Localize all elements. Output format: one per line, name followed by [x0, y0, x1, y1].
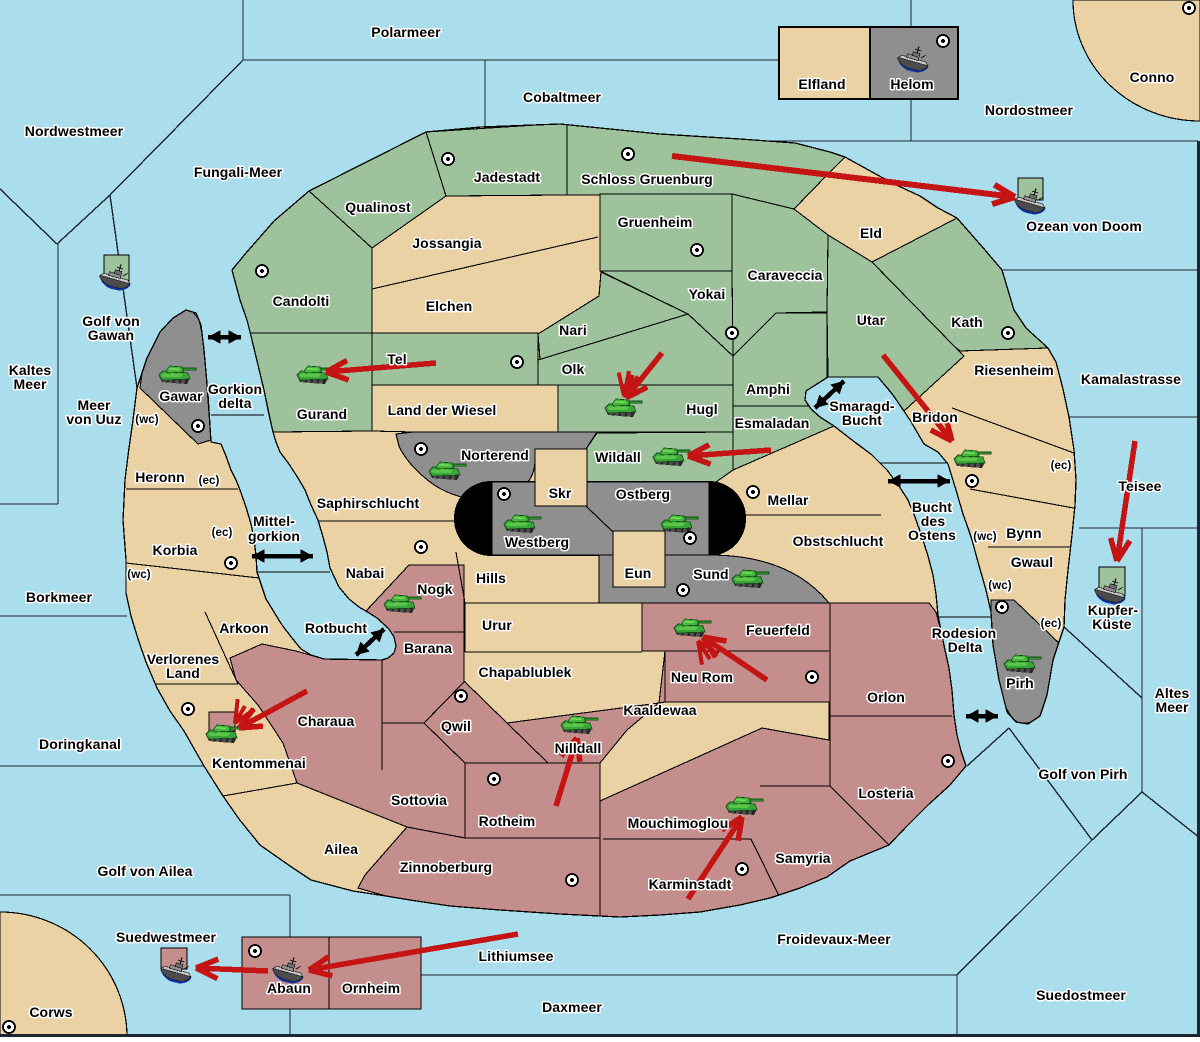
svg-text:Amphi: Amphi	[746, 381, 790, 397]
svg-text:(wc): (wc)	[135, 414, 158, 426]
svg-text:(ec): (ec)	[1041, 618, 1062, 630]
svg-text:Samyria: Samyria	[775, 850, 830, 866]
svg-text:Teisee: Teisee	[1118, 478, 1161, 494]
svg-text:Orlon: Orlon	[867, 689, 905, 705]
svg-text:Golf von Pirh: Golf von Pirh	[1038, 766, 1127, 782]
svg-text:Daxmeer: Daxmeer	[542, 999, 602, 1015]
svg-text:Gurand: Gurand	[297, 406, 347, 422]
svg-text:Obstschlucht: Obstschlucht	[793, 533, 884, 549]
svg-text:von Uuz: von Uuz	[66, 411, 121, 427]
svg-text:Conno: Conno	[1130, 69, 1175, 85]
svg-text:Skr: Skr	[549, 485, 572, 501]
svg-text:Feuerfeld: Feuerfeld	[746, 622, 810, 638]
svg-text:Losteria: Losteria	[858, 785, 913, 801]
svg-text:Land: Land	[166, 665, 200, 681]
svg-text:Bynn: Bynn	[1006, 525, 1041, 541]
svg-text:Qualinost: Qualinost	[345, 199, 411, 215]
svg-text:Chapablublek: Chapablublek	[479, 664, 572, 680]
svg-text:Nari: Nari	[559, 322, 587, 338]
svg-text:Doringkanal: Doringkanal	[39, 736, 121, 752]
svg-text:Ostberg: Ostberg	[616, 486, 670, 502]
svg-text:Kaaldewaa: Kaaldewaa	[623, 702, 696, 718]
svg-text:Candolti: Candolti	[273, 293, 330, 309]
svg-text:Sottovia: Sottovia	[391, 792, 447, 808]
svg-text:Nordostmeer: Nordostmeer	[985, 102, 1074, 118]
svg-text:Heronn: Heronn	[135, 469, 185, 485]
svg-text:Karminstadt: Karminstadt	[649, 876, 732, 892]
svg-text:Norterend: Norterend	[461, 447, 529, 463]
svg-text:Pirh: Pirh	[1006, 675, 1034, 691]
svg-text:Delta: Delta	[948, 639, 983, 655]
svg-text:Land der Wiesel: Land der Wiesel	[388, 402, 497, 418]
svg-text:Meer: Meer	[13, 376, 47, 392]
svg-text:Abaun: Abaun	[267, 980, 311, 996]
svg-text:(wc): (wc)	[127, 569, 150, 581]
svg-text:Schloss Gruenburg: Schloss Gruenburg	[581, 171, 713, 187]
svg-text:Golf von Ailea: Golf von Ailea	[97, 863, 192, 879]
svg-text:Zinnoberburg: Zinnoberburg	[400, 859, 492, 875]
svg-text:Fungali-Meer: Fungali-Meer	[194, 164, 283, 180]
svg-text:Gawar: Gawar	[159, 388, 203, 404]
svg-text:Charaua: Charaua	[298, 713, 355, 729]
svg-text:Qwil: Qwil	[441, 718, 471, 734]
svg-text:gorkion: gorkion	[248, 528, 300, 544]
svg-text:Mittel-: Mittel-	[253, 513, 295, 529]
svg-text:Meer: Meer	[1155, 699, 1189, 715]
svg-text:Suedwestmeer: Suedwestmeer	[116, 929, 216, 945]
svg-text:Corws: Corws	[29, 1004, 72, 1020]
svg-text:Caraveccia: Caraveccia	[748, 267, 823, 283]
svg-text:Hills: Hills	[476, 570, 506, 586]
svg-text:Rotheim: Rotheim	[479, 813, 536, 829]
svg-text:Helom: Helom	[890, 76, 933, 92]
svg-text:Westberg: Westberg	[505, 534, 569, 550]
svg-text:Ozean von Doom: Ozean von Doom	[1026, 218, 1142, 234]
svg-text:delta: delta	[218, 395, 251, 411]
svg-text:Elchen: Elchen	[426, 298, 473, 314]
svg-text:Kath: Kath	[951, 314, 983, 330]
svg-text:Jossangia: Jossangia	[412, 235, 481, 251]
svg-text:Riesenheim: Riesenheim	[974, 362, 1054, 378]
svg-text:Suedostmeer: Suedostmeer	[1036, 987, 1126, 1003]
svg-text:Mellar: Mellar	[767, 492, 809, 508]
svg-text:Cobaltmeer: Cobaltmeer	[523, 89, 601, 105]
svg-text:Ailea: Ailea	[324, 841, 358, 857]
svg-text:Gwaul: Gwaul	[1011, 554, 1054, 570]
svg-text:Kamalastrasse: Kamalastrasse	[1081, 371, 1181, 387]
svg-text:Lithiumsee: Lithiumsee	[479, 948, 554, 964]
svg-text:Sund: Sund	[693, 566, 728, 582]
svg-text:Utar: Utar	[857, 312, 886, 328]
svg-text:Olk: Olk	[562, 361, 585, 377]
svg-text:Rotbucht: Rotbucht	[305, 620, 367, 636]
svg-text:Saphirschlucht: Saphirschlucht	[317, 495, 420, 511]
svg-text:Mouchimoglou: Mouchimoglou	[628, 815, 729, 831]
svg-text:Nordwestmeer: Nordwestmeer	[25, 123, 124, 139]
svg-text:Jadestadt: Jadestadt	[474, 169, 540, 185]
svg-text:Barana: Barana	[404, 640, 452, 656]
svg-text:Hugl: Hugl	[686, 401, 718, 417]
svg-text:Eun: Eun	[625, 565, 652, 581]
svg-text:Arkoon: Arkoon	[219, 620, 269, 636]
svg-text:Nabai: Nabai	[346, 565, 385, 581]
svg-text:Küste: Küste	[1092, 616, 1132, 632]
svg-text:Nilldall: Nilldall	[555, 740, 602, 756]
svg-text:Ornheim: Ornheim	[342, 980, 400, 996]
svg-text:(ec): (ec)	[212, 527, 233, 539]
svg-text:Urur: Urur	[482, 617, 512, 633]
svg-text:Neu Rom: Neu Rom	[671, 669, 733, 685]
svg-text:Borkmeer: Borkmeer	[26, 589, 93, 605]
svg-text:Kentommenai: Kentommenai	[212, 755, 306, 771]
svg-text:Tel: Tel	[387, 351, 407, 367]
svg-text:Korbia: Korbia	[153, 542, 198, 558]
svg-text:Wildall: Wildall	[595, 449, 641, 465]
svg-text:Nogk: Nogk	[417, 581, 453, 597]
svg-text:(wc): (wc)	[973, 531, 996, 543]
svg-text:Elfland: Elfland	[798, 76, 845, 92]
svg-text:Gruenheim: Gruenheim	[618, 214, 693, 230]
svg-text:Gawan: Gawan	[88, 327, 134, 343]
svg-text:Esmaladan: Esmaladan	[735, 415, 810, 431]
svg-text:(wc): (wc)	[988, 580, 1011, 592]
svg-text:Eld: Eld	[860, 225, 882, 241]
svg-text:Ostens: Ostens	[908, 527, 956, 543]
svg-text:Yokai: Yokai	[689, 286, 726, 302]
svg-text:Bridon: Bridon	[912, 409, 958, 425]
svg-text:Polarmeer: Polarmeer	[371, 24, 441, 40]
svg-text:Froidevaux-Meer: Froidevaux-Meer	[777, 931, 891, 947]
svg-text:(ec): (ec)	[1051, 460, 1072, 472]
svg-text:(ec): (ec)	[199, 475, 220, 487]
svg-text:Bucht: Bucht	[842, 412, 882, 428]
